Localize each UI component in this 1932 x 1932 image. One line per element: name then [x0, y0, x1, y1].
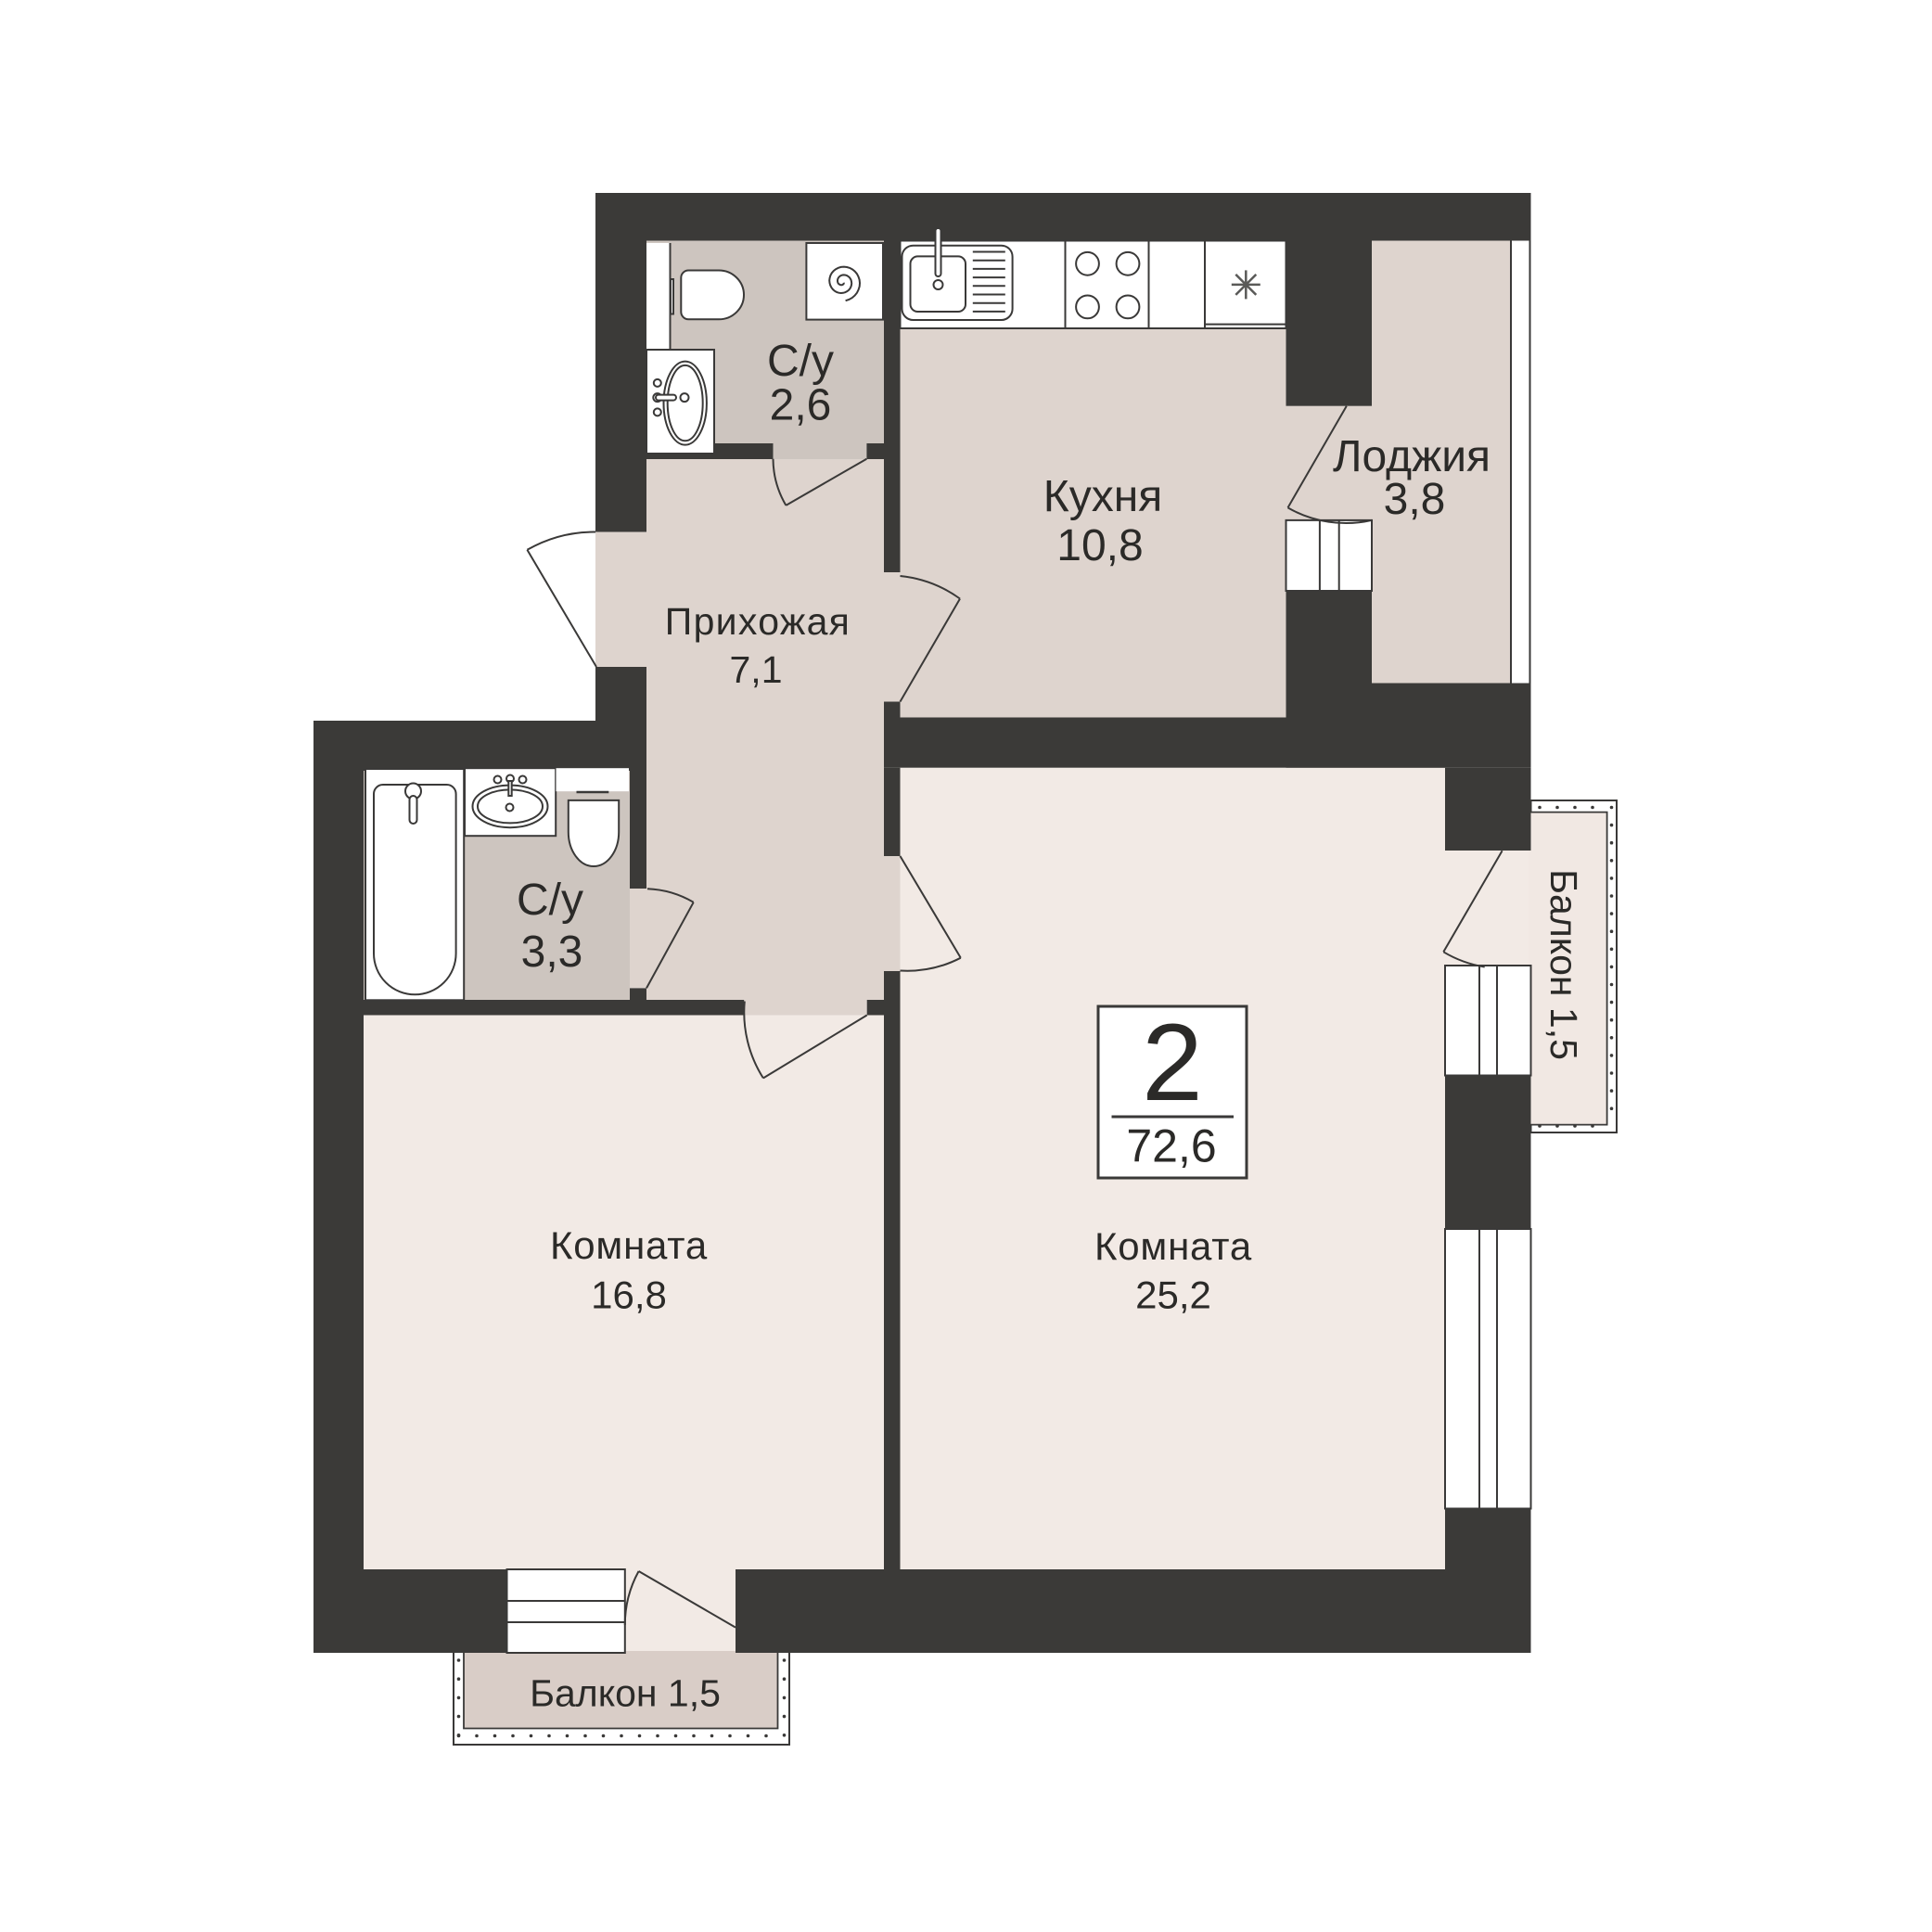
svg-text:3,8: 3,8	[1384, 475, 1446, 524]
svg-text:Прихожая: Прихожая	[665, 600, 851, 643]
svg-text:Кухня: Кухня	[1043, 472, 1162, 521]
svg-text:Комната: Комната	[1094, 1224, 1252, 1268]
svg-text:Балкон 1,5: Балкон 1,5	[1542, 869, 1585, 1060]
svg-text:10,8: 10,8	[1056, 521, 1143, 570]
svg-text:2: 2	[1142, 1002, 1203, 1124]
svg-text:16,8: 16,8	[591, 1273, 667, 1317]
svg-text:С/у: С/у	[517, 876, 583, 925]
svg-text:25,2: 25,2	[1135, 1273, 1211, 1317]
svg-text:С/у: С/у	[767, 337, 834, 386]
svg-text:3,3: 3,3	[521, 928, 583, 977]
svg-text:2,6: 2,6	[770, 381, 832, 430]
svg-text:Комната: Комната	[550, 1223, 708, 1267]
svg-text:Балкон 1,5: Балкон 1,5	[530, 1671, 721, 1714]
svg-text:72,6: 72,6	[1126, 1120, 1216, 1172]
svg-text:7,1: 7,1	[730, 648, 783, 691]
